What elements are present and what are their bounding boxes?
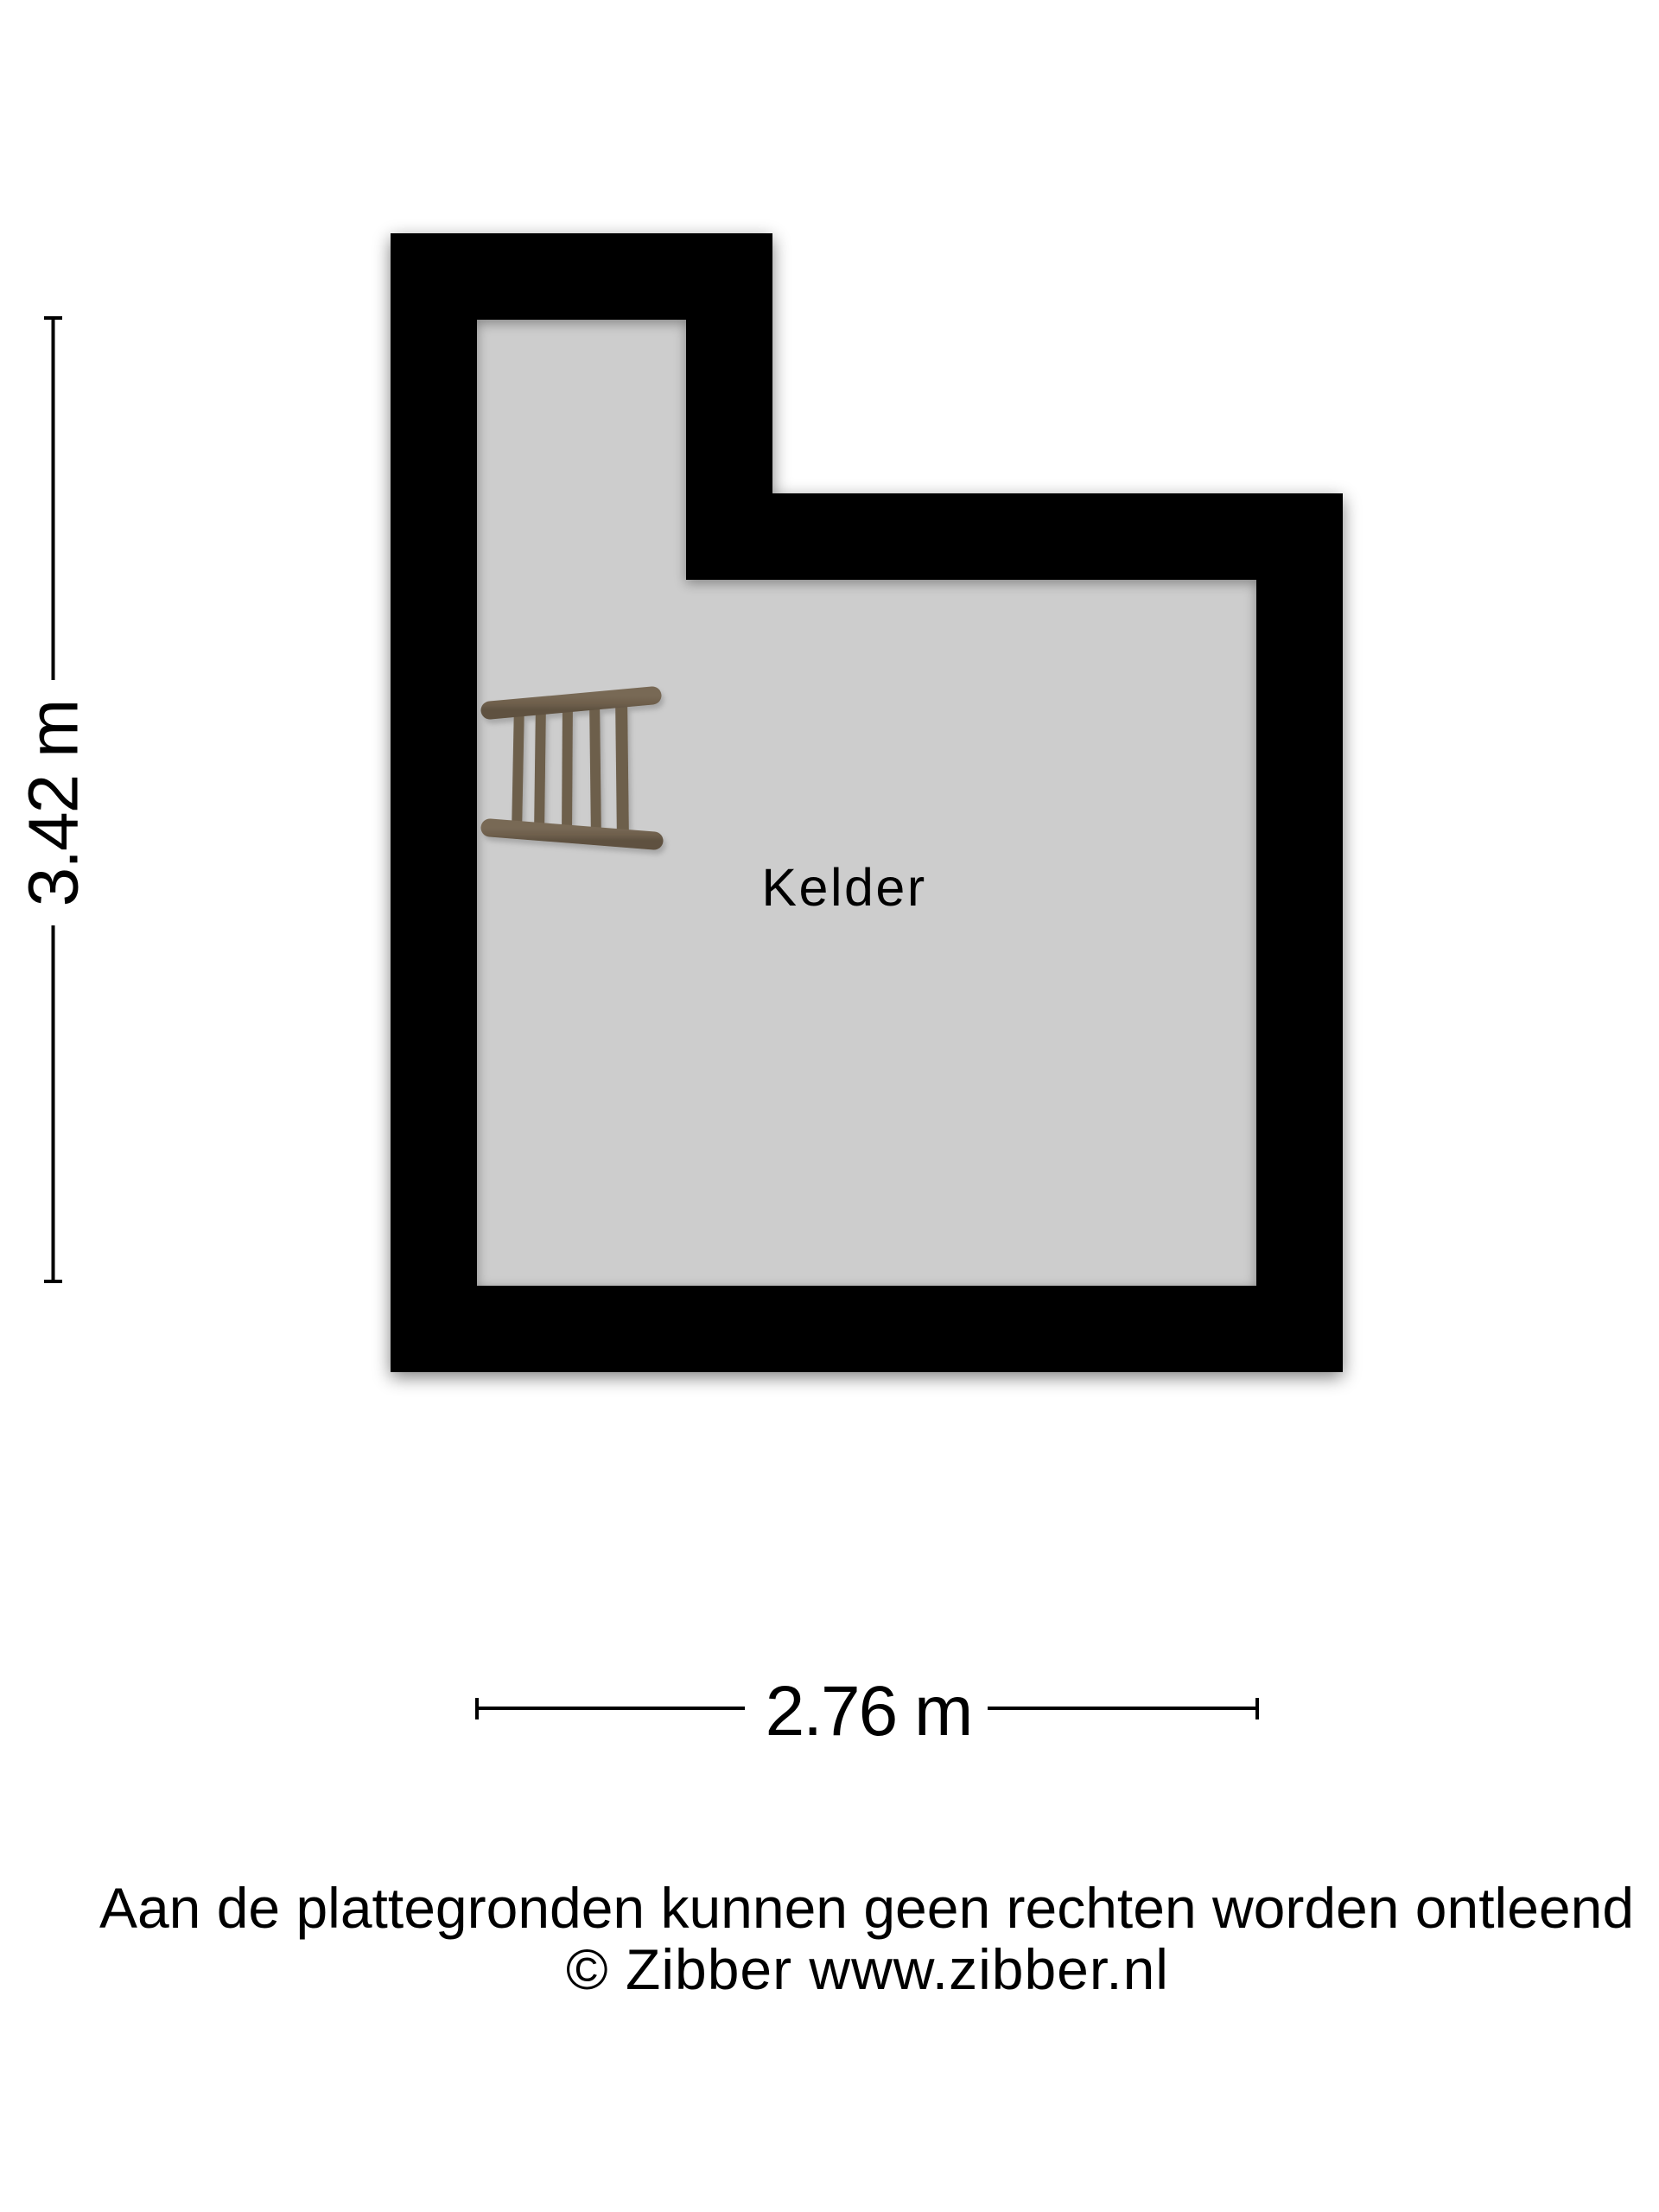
svg-text:Aan de plattegronden kunnen ge: Aan de plattegronden kunnen geen rechten… bbox=[99, 1876, 1634, 1940]
svg-text:2.76 m: 2.76 m bbox=[766, 1672, 972, 1751]
svg-text:© Zibber www.zibber.nl: © Zibber www.zibber.nl bbox=[566, 1937, 1169, 2001]
svg-text:Kelder: Kelder bbox=[761, 858, 926, 917]
svg-text:3.42 m: 3.42 m bbox=[15, 701, 93, 907]
